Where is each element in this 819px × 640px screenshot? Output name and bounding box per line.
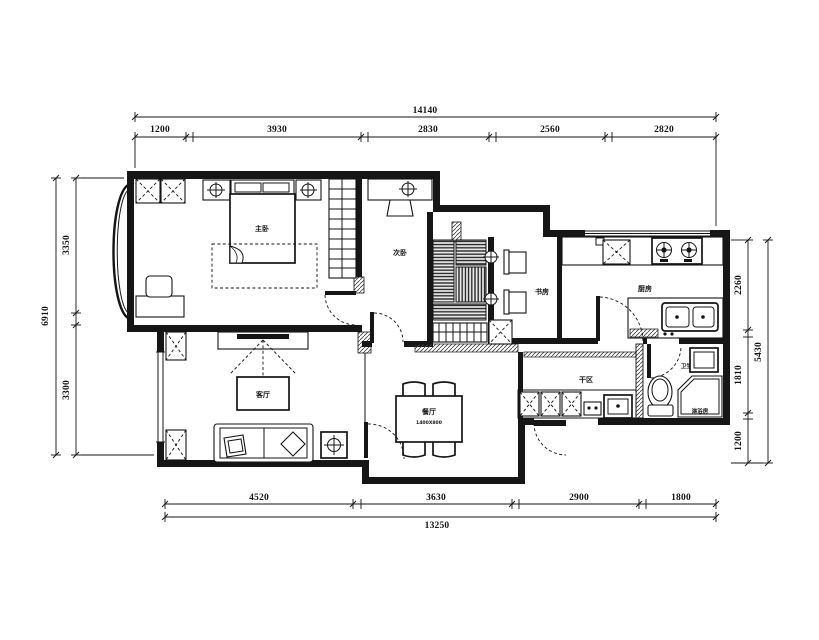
room-second-bedroom: 次卧 <box>368 179 432 343</box>
floor-threshold <box>415 344 518 352</box>
living-window <box>156 352 165 442</box>
dim-label: 1200 <box>150 125 170 135</box>
room-label-study: 书房 <box>535 287 549 296</box>
nightstand-left <box>203 180 230 200</box>
cabinet <box>166 332 186 460</box>
dim-label: 2830 <box>418 125 438 135</box>
floor-plan-drawing: 14140 1200 3930 2830 2560 2820 <box>0 0 819 640</box>
room-label-second-bedroom: 次卧 <box>393 248 407 257</box>
fridge <box>603 240 630 264</box>
dimension-right: 2260 1810 1200 5430 <box>731 237 773 466</box>
door-second-bedroom <box>370 312 403 343</box>
room-dining: 餐厅 1400X800 <box>364 382 462 459</box>
dim-label: 3350 <box>62 235 72 255</box>
wardrobe-top <box>136 179 185 203</box>
desk <box>136 276 184 317</box>
dresser <box>368 179 432 200</box>
room-dry-area: 干区 <box>518 376 636 418</box>
cabinet <box>489 320 512 344</box>
room-bathroom: 卫生间 淋浴房 <box>647 344 722 417</box>
appliance <box>584 402 601 415</box>
room-label-dry-area: 干区 <box>579 376 593 384</box>
room-kitchen: 厨房 <box>562 237 723 341</box>
room-label-living: 客厅 <box>255 390 270 399</box>
washbasin-dry <box>604 395 632 418</box>
washbasin-bath <box>690 348 718 372</box>
dim-label: 3630 <box>426 493 446 503</box>
dining-table-note: 1400X800 <box>416 420 442 426</box>
pillow <box>224 435 246 457</box>
kitchen-sink <box>662 303 718 331</box>
nightstand-right <box>296 180 321 200</box>
dining-table <box>396 396 462 442</box>
door-bathroom <box>647 344 681 378</box>
dim-label: 13250 <box>425 521 450 531</box>
room-label-shower: 淋浴房 <box>692 407 709 415</box>
room-label-dining: 餐厅 <box>421 407 436 416</box>
dim-label: 1200 <box>734 431 744 451</box>
cabinet <box>520 392 581 416</box>
dimension-top: 14140 1200 3930 2830 2560 2820 <box>132 106 719 226</box>
dim-label: 3930 <box>267 125 287 135</box>
dim-label: 2560 <box>540 125 560 135</box>
gas-stove <box>652 238 702 264</box>
wardrobe-sliding <box>329 179 356 278</box>
dim-label: 14140 <box>413 106 438 116</box>
room-label-master-bedroom: 主卧 <box>255 224 269 233</box>
sofa <box>214 424 313 462</box>
room-master-bedroom: 主卧 <box>136 179 356 325</box>
dim-label: 1800 <box>671 493 691 503</box>
kitchen-window <box>585 230 710 237</box>
dim-label: 5430 <box>754 342 764 362</box>
chair <box>504 290 526 314</box>
door-master-bedroom <box>325 291 356 325</box>
dimension-bottom: 4520 3630 2900 1800 13250 <box>162 493 719 531</box>
room-label-kitchen: 厨房 <box>638 284 652 293</box>
dim-label: 2820 <box>654 125 674 135</box>
closet <box>433 240 487 342</box>
dim-label: 6910 <box>41 306 51 326</box>
radiator <box>433 323 487 342</box>
entrance-door <box>534 420 566 455</box>
room-living: 客厅 <box>166 332 347 462</box>
dim-label: 1810 <box>734 365 744 385</box>
chair <box>387 200 413 216</box>
floor-plan-page: 14140 1200 3930 2830 2560 2820 <box>0 0 819 640</box>
tv <box>237 334 289 339</box>
side-table <box>321 432 347 458</box>
dim-label: 3300 <box>62 380 72 400</box>
dim-label: 2900 <box>569 493 589 503</box>
interior-walls <box>127 171 730 422</box>
dim-label: 2260 <box>734 275 744 295</box>
dim-label: 4520 <box>249 493 269 503</box>
chair <box>504 250 526 274</box>
bed <box>230 180 295 263</box>
toilet <box>648 376 673 416</box>
